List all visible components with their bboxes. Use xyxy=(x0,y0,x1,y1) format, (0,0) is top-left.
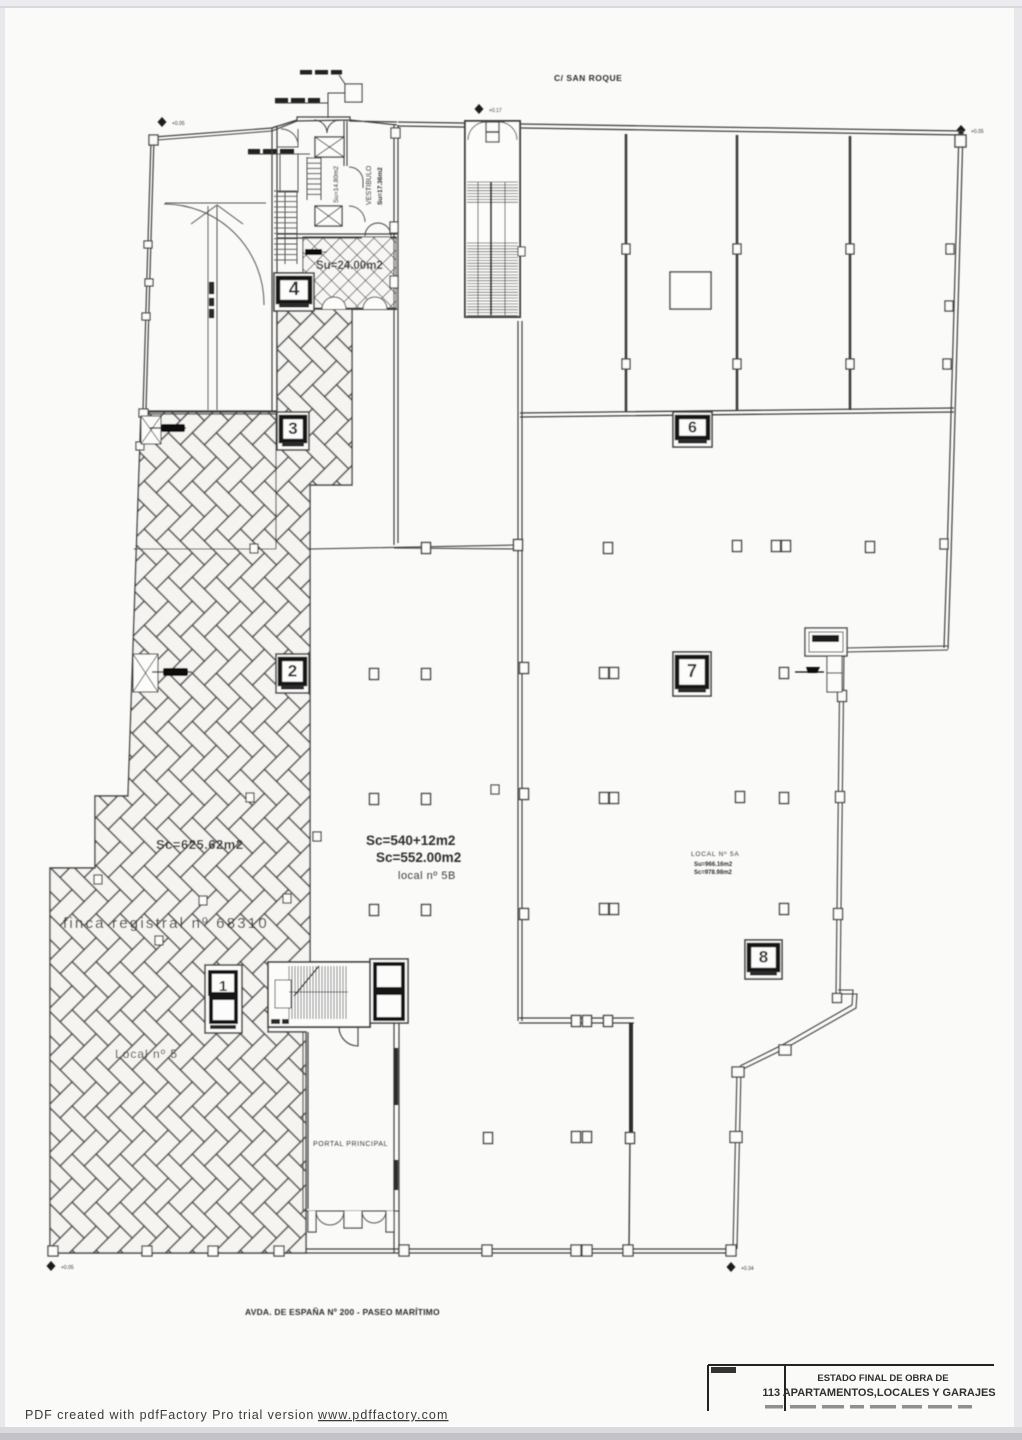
svg-text:VESTIBULO: VESTIBULO xyxy=(366,165,373,205)
svg-text:4: 4 xyxy=(289,279,300,300)
svg-text:Su=966.16m2: Su=966.16m2 xyxy=(694,862,733,868)
svg-text:3: 3 xyxy=(288,419,297,438)
svg-text:finca registral nº 68310: finca registral nº 68310 xyxy=(63,915,269,932)
svg-text:Sc=625.62m2: Sc=625.62m2 xyxy=(156,837,244,852)
svg-text:+0.05: +0.05 xyxy=(61,1265,74,1271)
svg-text:PORTAL PRINCIPAL: PORTAL PRINCIPAL xyxy=(313,1141,388,1148)
svg-text:local nº 5B: local nº 5B xyxy=(398,870,456,882)
svg-text:+0.17: +0.17 xyxy=(489,108,502,114)
svg-text:LOCAL Nº 5A: LOCAL Nº 5A xyxy=(691,851,740,858)
svg-text:Sc=540+12m2: Sc=540+12m2 xyxy=(366,833,455,848)
svg-text:C/ SAN ROQUE: C/ SAN ROQUE xyxy=(554,73,622,83)
svg-text:Sc=552.00m2: Sc=552.00m2 xyxy=(376,850,461,865)
svg-text:Sc=978.98m2: Sc=978.98m2 xyxy=(694,870,733,876)
svg-text:7: 7 xyxy=(687,661,697,681)
svg-text:+0.05: +0.05 xyxy=(172,121,185,127)
svg-text:Su=24.00m2: Su=24.00m2 xyxy=(316,260,383,272)
svg-text:+0.05: +0.05 xyxy=(971,129,984,135)
svg-text:2: 2 xyxy=(288,662,297,681)
svg-text:Su=17.36m2: Su=17.36m2 xyxy=(377,167,384,205)
svg-text:ESTADO FINAL DE OBRA DE: ESTADO FINAL DE OBRA DE xyxy=(817,1373,948,1384)
svg-text:6: 6 xyxy=(688,420,697,437)
svg-text:AVDA. DE ESPAÑA Nº 200 - PASEO: AVDA. DE ESPAÑA Nº 200 - PASEO MARÍTIMO xyxy=(245,1307,440,1317)
svg-text:113 APARTAMENTOS,LOCALES Y GAR: 113 APARTAMENTOS,LOCALES Y GARAJES xyxy=(762,1387,995,1399)
svg-text:PDF created with pdfFactory Pr: PDF created with pdfFactory Pro trial ve… xyxy=(25,1408,314,1422)
svg-text:Su=14.80m2: Su=14.80m2 xyxy=(333,166,340,203)
svg-text:+0.34: +0.34 xyxy=(741,1266,754,1272)
svg-text:www.pdffactory.com: www.pdffactory.com xyxy=(317,1408,449,1422)
svg-text:1: 1 xyxy=(219,978,227,995)
svg-text:8: 8 xyxy=(759,948,768,967)
svg-text:Local nº 5: Local nº 5 xyxy=(115,1047,178,1061)
